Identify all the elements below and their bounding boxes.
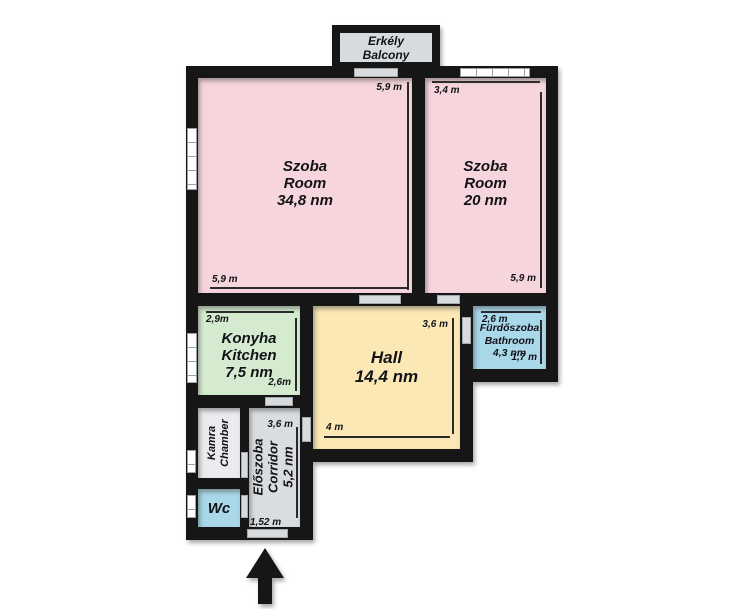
wall-bath-bottom bbox=[460, 369, 558, 382]
kitchen-label: Konyha Kitchen 7,5 nm bbox=[198, 330, 300, 381]
bathroom-label-en: Bathroom bbox=[473, 335, 546, 348]
room-small-label-hu: Szoba bbox=[425, 158, 546, 175]
room-small-label-en: Room bbox=[425, 175, 546, 192]
entrance-arrow-head bbox=[246, 548, 284, 578]
balcony-door bbox=[354, 68, 398, 77]
wall-chamber-wc-divider bbox=[198, 478, 249, 489]
kitchen-label-hu: Konyha bbox=[198, 330, 300, 347]
bathroom-label: Fürdőszoba Bathroom 4,3 nm bbox=[473, 322, 546, 360]
wall-kitchen-bottom bbox=[186, 395, 313, 408]
kitchen-window bbox=[187, 333, 197, 383]
corridor-label: Előszoba Corridor 5,2 nm bbox=[251, 438, 296, 495]
hall-area: 14,4 nm bbox=[313, 367, 460, 386]
floor-plan: 5,9 m 5,9 m 3,4 m 5,9 m 2,9m 2,6m 3,6 m … bbox=[0, 0, 730, 609]
room-small-area: 20 nm bbox=[425, 192, 546, 209]
hall-label-name: Hall bbox=[313, 348, 460, 367]
wall-hall-bottom bbox=[300, 449, 473, 462]
wall-kitchen-right bbox=[300, 306, 313, 408]
entrance-arrow-icon bbox=[246, 548, 284, 604]
chamber-window bbox=[187, 450, 196, 473]
balcony-label-hu: Erkély bbox=[368, 34, 404, 48]
room-large-label: Szoba Room 34,8 nm bbox=[198, 158, 412, 209]
wc-window bbox=[187, 495, 196, 518]
corridor-label-hu: Előszoba bbox=[251, 438, 266, 495]
hall-label: Hall 14,4 nm bbox=[313, 348, 460, 386]
balcony-label: Erkély Balcony bbox=[363, 34, 410, 62]
entrance-arrow-stem bbox=[258, 576, 272, 604]
corridor-area: 5,2 nm bbox=[281, 438, 296, 495]
chamber-label: Kamra Chamber bbox=[206, 419, 232, 467]
room-large-label-hu: Szoba bbox=[198, 158, 412, 175]
corridor-label-en: Corridor bbox=[266, 438, 281, 495]
door-hall-bathroom bbox=[462, 317, 471, 344]
bathroom-label-hu: Fürdőszoba bbox=[473, 322, 546, 335]
door-chamber-corridor bbox=[241, 452, 248, 478]
kitchen-label-en: Kitchen bbox=[198, 347, 300, 364]
door-corridor-hall bbox=[302, 417, 311, 442]
chamber-label-en: Chamber bbox=[219, 419, 232, 467]
walls-layer: Erkély Balcony bbox=[0, 0, 730, 609]
door-room-small-hall bbox=[437, 295, 460, 304]
balcony: Erkély Balcony bbox=[332, 25, 440, 70]
room-large-label-en: Room bbox=[198, 175, 412, 192]
room-small-window bbox=[460, 68, 530, 77]
bathroom-area: 4,3 nm bbox=[473, 347, 546, 360]
wall-room-divider bbox=[412, 78, 425, 293]
door-kitchen-corridor bbox=[265, 397, 293, 406]
door-wc-corridor bbox=[241, 495, 248, 518]
chamber-label-hu: Kamra bbox=[206, 419, 219, 467]
room-large-area: 34,8 nm bbox=[198, 192, 412, 209]
wc-label-name: Wc bbox=[208, 500, 231, 517]
wall-right bbox=[546, 66, 558, 382]
door-room-large-hall bbox=[359, 295, 401, 304]
balcony-label-en: Balcony bbox=[363, 48, 410, 62]
room-small-label: Szoba Room 20 nm bbox=[425, 158, 546, 209]
entrance-door bbox=[247, 529, 288, 538]
wc-label: Wc bbox=[198, 489, 240, 527]
kitchen-area: 7,5 nm bbox=[198, 364, 300, 381]
room-large-window bbox=[187, 128, 197, 190]
